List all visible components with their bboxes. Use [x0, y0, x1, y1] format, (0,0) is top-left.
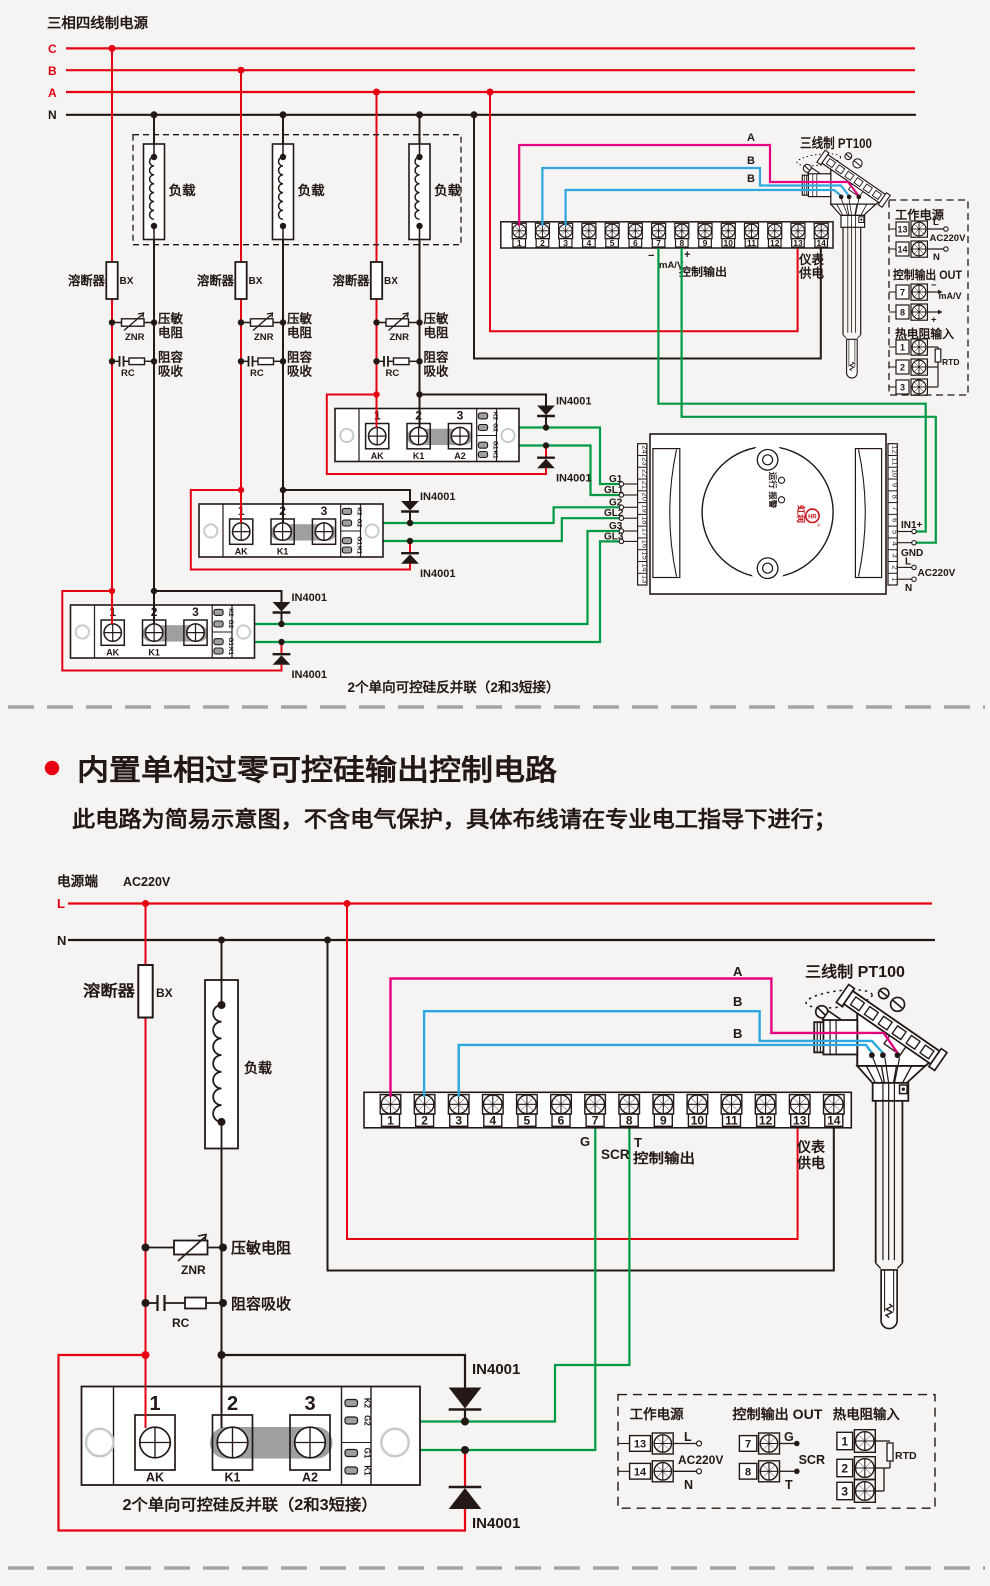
svg-text:IN4001: IN4001 [556, 396, 591, 408]
svg-text:RC: RC [172, 1316, 190, 1330]
svg-text:GL1: GL1 [604, 485, 624, 496]
svg-text:K1: K1 [227, 647, 234, 656]
svg-text:报警: 报警 [768, 491, 778, 508]
svg-text:9: 9 [891, 483, 900, 487]
svg-text:13: 13 [634, 1439, 646, 1451]
svg-text:工作电源: 工作电源 [630, 1406, 684, 1422]
svg-text:−: − [931, 280, 937, 291]
svg-text:阻容: 阻容 [158, 350, 184, 365]
svg-text:14: 14 [816, 238, 826, 248]
svg-text:溶断器: 溶断器 [68, 273, 106, 288]
svg-text:RC: RC [121, 368, 135, 379]
svg-text:T: T [634, 1135, 642, 1150]
svg-text:+: + [931, 315, 937, 326]
svg-text:N: N [57, 933, 66, 948]
svg-text:压敏: 压敏 [287, 311, 313, 326]
svg-text:RC: RC [386, 368, 400, 379]
svg-text:压敏: 压敏 [424, 311, 450, 326]
svg-text:AK: AK [146, 1471, 164, 1485]
svg-text:B: B [747, 173, 755, 185]
svg-text:N: N [684, 1478, 693, 1492]
svg-text:T: T [785, 1478, 793, 1492]
svg-text:AC220V: AC220V [930, 233, 967, 244]
svg-text:压敏电阻: 压敏电阻 [231, 1239, 291, 1257]
svg-text:23: 23 [640, 457, 649, 465]
svg-text:GL3: GL3 [604, 531, 624, 542]
svg-text:22: 22 [640, 469, 649, 477]
svg-text:BX: BX [249, 276, 263, 287]
svg-text:IN4001: IN4001 [472, 1515, 520, 1532]
svg-text:N: N [933, 252, 940, 263]
svg-text:K1: K1 [277, 547, 289, 557]
svg-text:2个单向可控硅反并联（2和3短接）: 2个单向可控硅反并联（2和3短接） [348, 679, 560, 695]
svg-text:8: 8 [900, 308, 905, 318]
svg-text:G3: G3 [609, 521, 623, 532]
svg-text:BX: BX [384, 276, 398, 287]
svg-text:4: 4 [489, 1113, 496, 1127]
svg-text:3: 3 [900, 383, 905, 393]
svg-text:RTD: RTD [895, 1450, 917, 1462]
svg-text:B: B [747, 155, 755, 167]
svg-text:K1: K1 [225, 1471, 241, 1485]
svg-text:控制输出 OUT: 控制输出 OUT [732, 1406, 823, 1422]
svg-text:13: 13 [793, 238, 803, 248]
svg-text:7: 7 [900, 288, 905, 298]
svg-text:14: 14 [634, 1466, 647, 1478]
svg-text:K1: K1 [356, 546, 363, 555]
svg-text:7: 7 [656, 238, 661, 248]
svg-text:16: 16 [640, 540, 649, 548]
svg-text:ZNR: ZNR [181, 1263, 206, 1277]
svg-text:吸收: 吸收 [158, 364, 184, 379]
svg-text:10: 10 [691, 1113, 705, 1127]
svg-text:AK: AK [106, 648, 119, 658]
svg-text:10: 10 [891, 469, 900, 477]
svg-text:控制输出 OUT: 控制输出 OUT [893, 267, 963, 282]
svg-text:9: 9 [703, 238, 708, 248]
svg-text:2: 2 [900, 363, 905, 373]
svg-text:G1: G1 [227, 637, 234, 646]
svg-text:A2: A2 [302, 1471, 318, 1485]
svg-text:3: 3 [841, 1485, 848, 1499]
svg-text:负载: 负载 [169, 183, 196, 198]
svg-text:2: 2 [841, 1462, 848, 1476]
svg-text:K1: K1 [492, 450, 499, 459]
svg-text:2: 2 [227, 1393, 238, 1415]
svg-text:C: C [48, 42, 57, 56]
svg-text:G1: G1 [363, 1448, 372, 1459]
svg-text:IN4001: IN4001 [292, 592, 327, 604]
svg-text:A2: A2 [454, 451, 466, 461]
svg-text:BX: BX [120, 276, 134, 287]
svg-text:供电: 供电 [798, 266, 824, 281]
svg-text:K2: K2 [355, 507, 362, 516]
svg-text:负载: 负载 [434, 183, 461, 198]
svg-text:内置单相过零可控硅输出控制电路: 内置单相过零可控硅输出控制电路 [77, 753, 558, 787]
svg-text:负载: 负载 [244, 1060, 272, 1076]
svg-text:GL2: GL2 [604, 508, 624, 519]
svg-text:8: 8 [891, 495, 900, 499]
svg-text:11: 11 [725, 1113, 738, 1127]
svg-text:K1: K1 [413, 451, 425, 461]
svg-text:15: 15 [640, 551, 649, 559]
svg-text:A: A [747, 132, 755, 144]
svg-text:13: 13 [640, 575, 649, 583]
svg-text:AC220V: AC220V [123, 875, 171, 889]
svg-text:3: 3 [304, 1393, 315, 1415]
svg-text:21: 21 [640, 481, 649, 489]
svg-text:+: + [684, 249, 690, 261]
svg-text:3: 3 [891, 554, 900, 558]
svg-text:电阻: 电阻 [287, 325, 313, 340]
svg-text:8: 8 [626, 1113, 633, 1127]
svg-text:14: 14 [640, 563, 649, 571]
svg-text:吸收: 吸收 [424, 364, 450, 379]
svg-text:L: L [933, 217, 939, 228]
svg-text:阻容吸收: 阻容吸收 [231, 1295, 291, 1313]
svg-text:3: 3 [455, 1113, 462, 1127]
svg-text:压敏: 压敏 [158, 311, 184, 326]
svg-text:BX: BX [156, 986, 173, 1000]
svg-text:热电阻输入: 热电阻输入 [833, 1406, 900, 1422]
svg-text:ZNR: ZNR [125, 332, 145, 343]
svg-text:A: A [48, 86, 57, 100]
svg-text:7: 7 [891, 506, 900, 510]
svg-text:G: G [784, 1430, 794, 1444]
svg-text:5: 5 [524, 1113, 531, 1127]
svg-text:9: 9 [660, 1113, 667, 1127]
svg-text:11: 11 [891, 457, 900, 465]
svg-text:ZNR: ZNR [390, 332, 410, 343]
svg-text:仪表: 仪表 [796, 1139, 826, 1155]
svg-text:K2: K2 [227, 608, 234, 617]
svg-text:K2: K2 [363, 1398, 372, 1409]
svg-text:12: 12 [770, 238, 780, 248]
svg-text:13: 13 [793, 1113, 807, 1127]
svg-text:电源端: 电源端 [57, 873, 99, 889]
svg-text:G1: G1 [609, 474, 623, 485]
svg-text:L: L [905, 557, 911, 568]
svg-text:3: 3 [321, 504, 328, 518]
svg-text:24: 24 [640, 445, 649, 453]
svg-text:2个单向可控硅反并联（2和3短接）: 2个单向可控硅反并联（2和3短接） [123, 1495, 378, 1514]
svg-text:AK: AK [235, 547, 248, 557]
svg-text:吸收: 吸收 [287, 364, 313, 379]
svg-text:B: B [48, 64, 57, 78]
svg-text:12: 12 [891, 445, 900, 453]
svg-text:AK: AK [371, 451, 384, 461]
svg-text:三相四线制电源: 三相四线制电源 [47, 15, 148, 31]
svg-text:13: 13 [897, 225, 907, 235]
svg-text:6: 6 [558, 1113, 565, 1127]
svg-text:控制输出: 控制输出 [633, 1150, 695, 1166]
svg-text:K1: K1 [148, 648, 160, 658]
svg-text:阻容: 阻容 [287, 350, 313, 365]
svg-text:溶断器: 溶断器 [333, 273, 371, 288]
svg-text:3: 3 [457, 409, 464, 423]
svg-text:运行: 运行 [768, 472, 778, 489]
svg-text:1: 1 [517, 238, 522, 248]
svg-text:此电路为简易示意图，不含电气保护，具体布线请在专业电工指导下: 此电路为简易示意图，不含电气保护，具体布线请在专业电工指导下进行； [72, 807, 837, 832]
svg-text:7: 7 [745, 1439, 751, 1451]
svg-text:供电: 供电 [796, 1155, 825, 1171]
svg-text:B: B [733, 994, 742, 1009]
svg-text:3: 3 [192, 605, 199, 619]
svg-text:L: L [57, 896, 65, 911]
svg-text:K1: K1 [363, 1465, 372, 1476]
svg-text:G1: G1 [356, 536, 363, 545]
svg-text:G2: G2 [492, 423, 499, 432]
svg-text:三线制 PT100: 三线制 PT100 [805, 962, 905, 981]
svg-text:19: 19 [640, 504, 649, 512]
svg-text:6: 6 [891, 518, 900, 522]
svg-text:三线制 PT100: 三线制 PT100 [800, 135, 872, 151]
svg-text:控制输出: 控制输出 [679, 265, 727, 279]
svg-text:K2: K2 [492, 412, 499, 421]
svg-text:L: L [684, 1430, 692, 1444]
svg-text:IN4001: IN4001 [556, 473, 591, 485]
svg-text:−: − [648, 250, 654, 262]
svg-text:溶断器: 溶断器 [83, 981, 136, 1000]
svg-text:2: 2 [540, 238, 545, 248]
svg-text:7: 7 [592, 1113, 599, 1127]
svg-text:IN4001: IN4001 [472, 1361, 520, 1378]
svg-text:1: 1 [841, 1435, 848, 1449]
svg-text:ZNR: ZNR [254, 332, 274, 343]
svg-text:12: 12 [759, 1113, 773, 1127]
svg-text:RC: RC [250, 368, 264, 379]
svg-text:IN4001: IN4001 [292, 669, 327, 681]
svg-text:2: 2 [421, 1113, 428, 1127]
svg-text:8: 8 [679, 238, 684, 248]
svg-text:SCR: SCR [799, 1453, 825, 1467]
svg-text:18: 18 [640, 516, 649, 524]
svg-text:G2: G2 [609, 497, 623, 508]
svg-text:1: 1 [387, 1113, 394, 1127]
svg-text:3: 3 [563, 238, 568, 248]
svg-text:10: 10 [724, 238, 734, 248]
svg-text:5: 5 [891, 530, 900, 534]
svg-text:G2: G2 [227, 620, 234, 629]
svg-text:SCR: SCR [601, 1147, 630, 1162]
svg-text:AC220V: AC220V [678, 1453, 723, 1467]
svg-text:5: 5 [610, 238, 615, 248]
svg-text:IN1+: IN1+ [901, 520, 923, 531]
svg-text:11: 11 [747, 238, 756, 248]
svg-text:1: 1 [900, 343, 905, 353]
svg-text:G2: G2 [356, 519, 363, 528]
svg-text:HR: HR [808, 514, 817, 520]
svg-text:4: 4 [587, 238, 592, 248]
svg-text:N: N [905, 583, 912, 594]
svg-text:B: B [733, 1026, 742, 1041]
svg-text:A: A [733, 964, 743, 979]
svg-text:1: 1 [149, 1393, 160, 1415]
svg-text:14: 14 [897, 245, 907, 255]
svg-text:仪表: 仪表 [798, 252, 824, 267]
svg-text:mA/V: mA/V [939, 291, 962, 301]
svg-text:8: 8 [745, 1466, 751, 1478]
svg-text:14: 14 [827, 1113, 841, 1127]
svg-text:电阻: 电阻 [158, 325, 184, 340]
svg-text:G: G [580, 1134, 590, 1149]
svg-text:17: 17 [640, 528, 649, 536]
svg-text:电阻: 电阻 [424, 325, 450, 340]
svg-text:G1: G1 [492, 441, 499, 450]
svg-text:AC220V: AC220V [918, 568, 956, 579]
svg-text:阻容: 阻容 [424, 350, 450, 365]
svg-text:负载: 负载 [298, 183, 325, 198]
svg-text:虹润: 虹润 [796, 505, 806, 524]
svg-text:RTD: RTD [942, 357, 959, 367]
svg-text:6: 6 [633, 238, 638, 248]
svg-text:IN4001: IN4001 [420, 491, 455, 503]
svg-text:IN4001: IN4001 [420, 568, 455, 580]
svg-text:G2: G2 [363, 1415, 372, 1426]
svg-text:20: 20 [640, 493, 649, 501]
svg-text:N: N [48, 108, 57, 122]
svg-text:溶断器: 溶断器 [197, 273, 235, 288]
